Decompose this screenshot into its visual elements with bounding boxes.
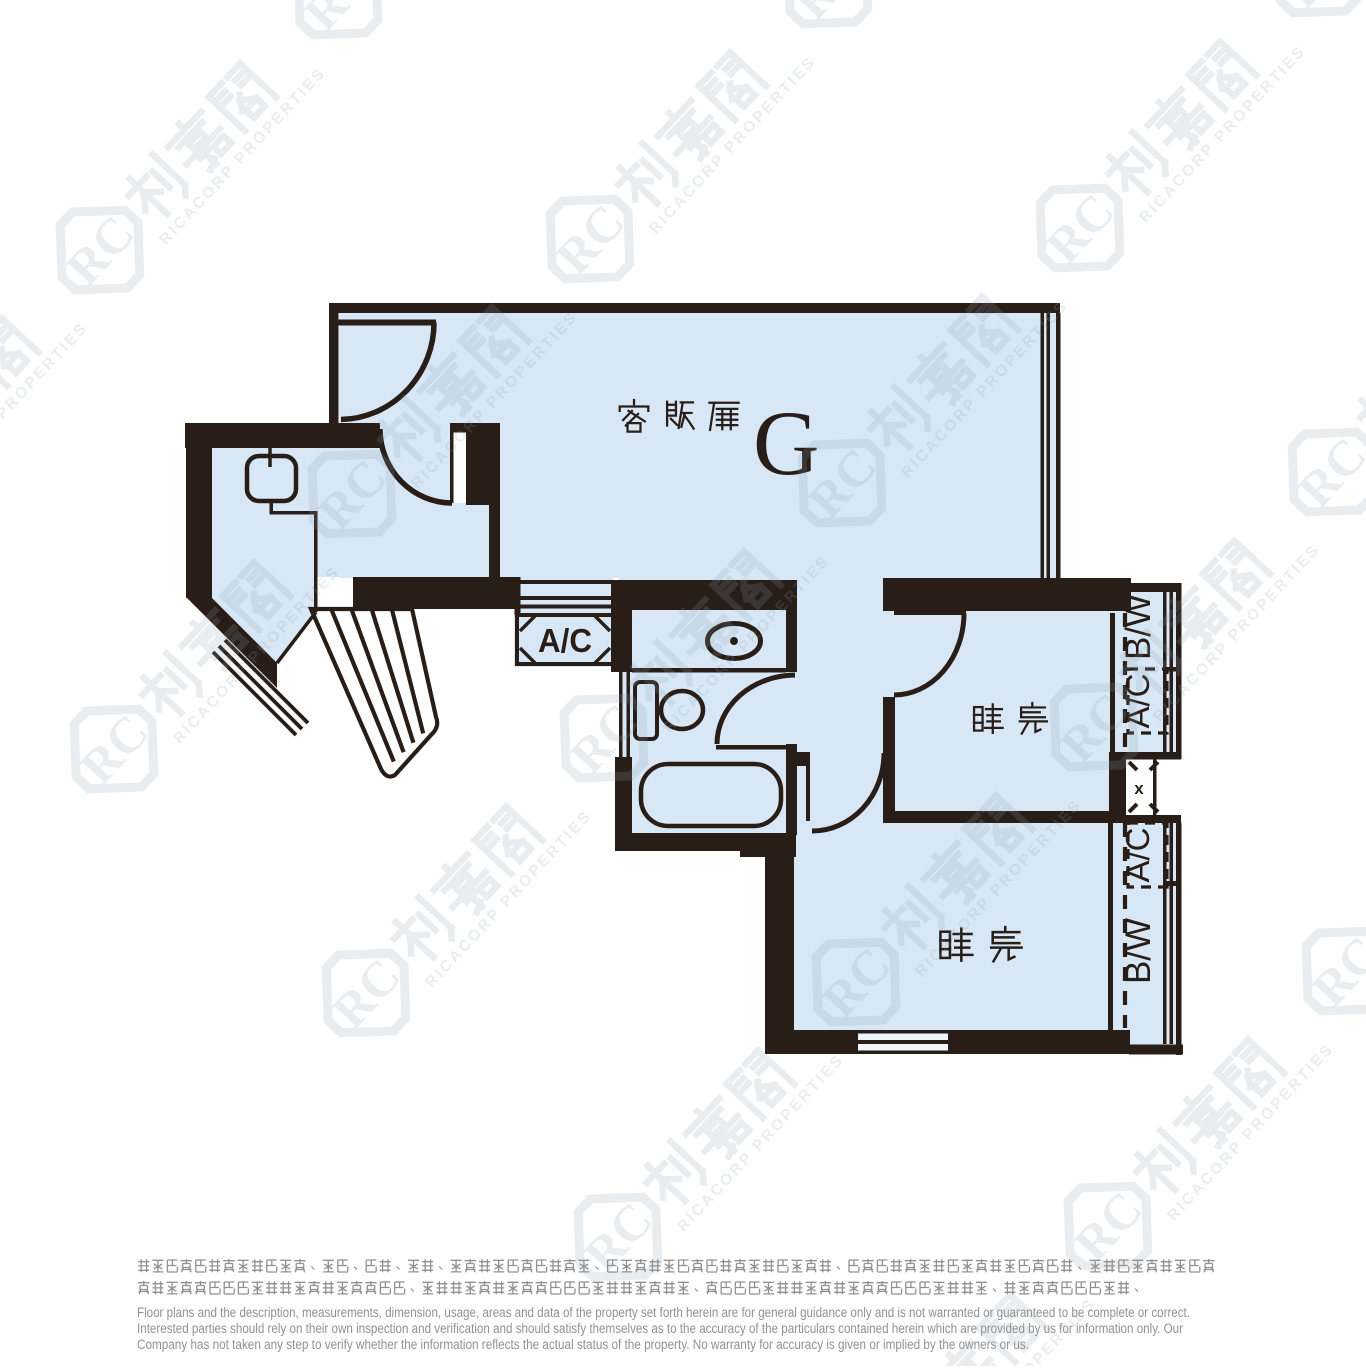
- svg-text:x: x: [1134, 779, 1144, 798]
- svg-text:Company has not taken any step: Company has not taken any step to verify…: [137, 1337, 1029, 1352]
- svg-text:A/C: A/C: [538, 622, 592, 659]
